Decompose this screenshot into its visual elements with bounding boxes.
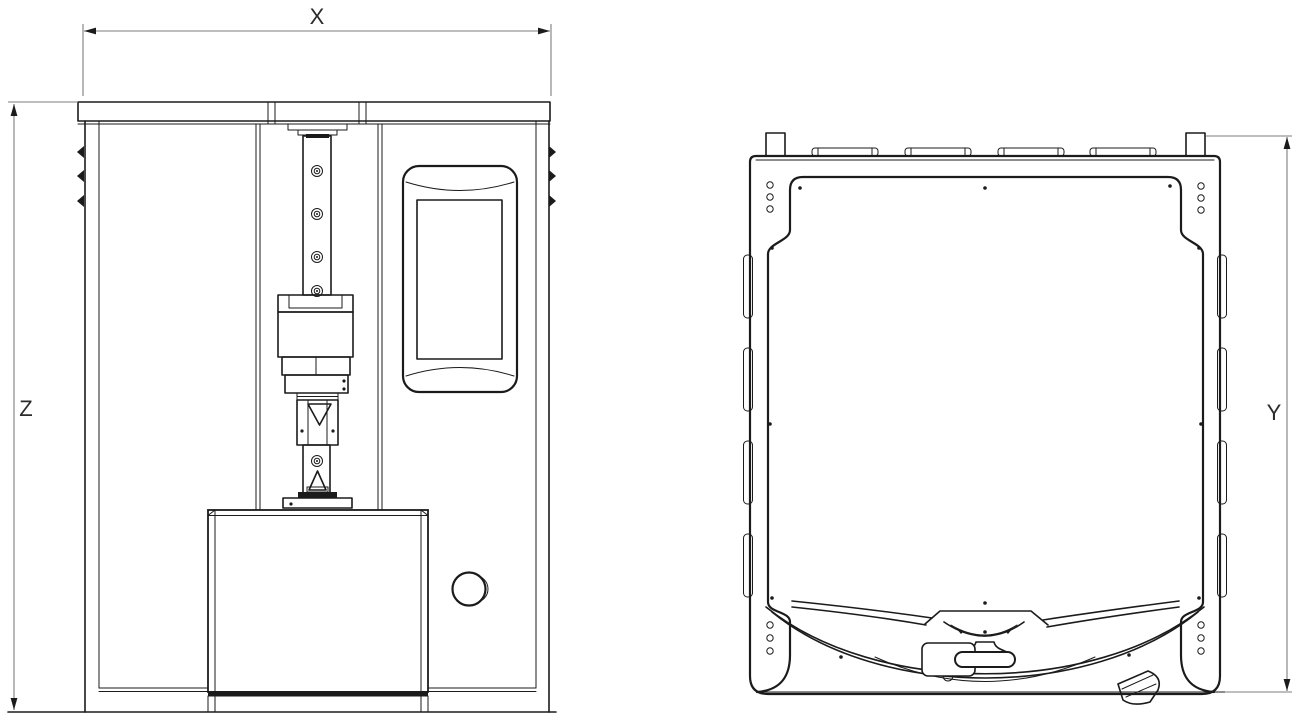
top-view xyxy=(744,133,1227,704)
rear-tab-right xyxy=(1186,133,1205,156)
front-opening-edge-left xyxy=(792,601,932,625)
dimension-z-label: Z xyxy=(19,396,32,421)
dimension-x: X xyxy=(83,4,551,96)
tank-box xyxy=(208,510,428,712)
dimension-z: Z xyxy=(8,102,78,710)
crosshead xyxy=(278,295,353,393)
panel-screw-dots xyxy=(768,184,1203,659)
screen-top-arc xyxy=(406,182,514,191)
dimension-x-arrow-right xyxy=(538,28,550,35)
column-bracket-plate xyxy=(288,124,347,130)
drawing-svg: X Z xyxy=(0,0,1300,723)
top-band xyxy=(78,102,550,121)
turret-assembly xyxy=(922,611,1048,681)
rear-tab-left xyxy=(766,133,785,156)
dimension-x-extension-lines xyxy=(83,24,551,96)
dimension-y-arrow-top xyxy=(1284,137,1291,149)
left-side-clips xyxy=(77,146,84,207)
left-side-tabs xyxy=(744,255,753,597)
right-side-clips xyxy=(549,146,556,207)
column-screws xyxy=(312,166,323,297)
control-knob xyxy=(453,573,489,606)
turret-hub xyxy=(955,652,1015,667)
dimension-y-arrow-bottom xyxy=(1284,679,1291,691)
dimension-z-arrow-bottom xyxy=(11,698,18,710)
front-skirt-inner-curve xyxy=(772,612,1198,678)
top-vents xyxy=(812,148,1156,156)
tank-gasket xyxy=(208,691,428,697)
screen-display xyxy=(417,200,502,359)
disc-tick-left xyxy=(956,628,964,634)
screen-bottom-arc xyxy=(406,368,514,377)
dimension-x-arrow-left xyxy=(84,28,96,35)
cone-probe-down xyxy=(308,404,331,425)
housing-outline xyxy=(750,156,1220,694)
touchscreen-panel xyxy=(403,166,517,392)
front-opening-edge-right xyxy=(1043,601,1179,627)
dimension-z-arrow-top xyxy=(11,104,18,116)
crosshead-top-notch xyxy=(925,611,1048,625)
dimension-x-label: X xyxy=(310,4,325,29)
dimension-y-label: Y xyxy=(1267,400,1282,425)
column xyxy=(303,136,331,295)
probe-fixture xyxy=(297,393,338,493)
front-view xyxy=(8,102,556,712)
inner-panel-outline xyxy=(757,177,1214,692)
right-side-tabs xyxy=(1218,255,1227,597)
tank-feet-lines xyxy=(208,696,428,712)
technical-drawing-page: X Z xyxy=(0,0,1300,723)
bay-walls xyxy=(256,124,382,510)
rubber-foot xyxy=(1118,671,1159,704)
corner-holes xyxy=(767,182,1204,654)
